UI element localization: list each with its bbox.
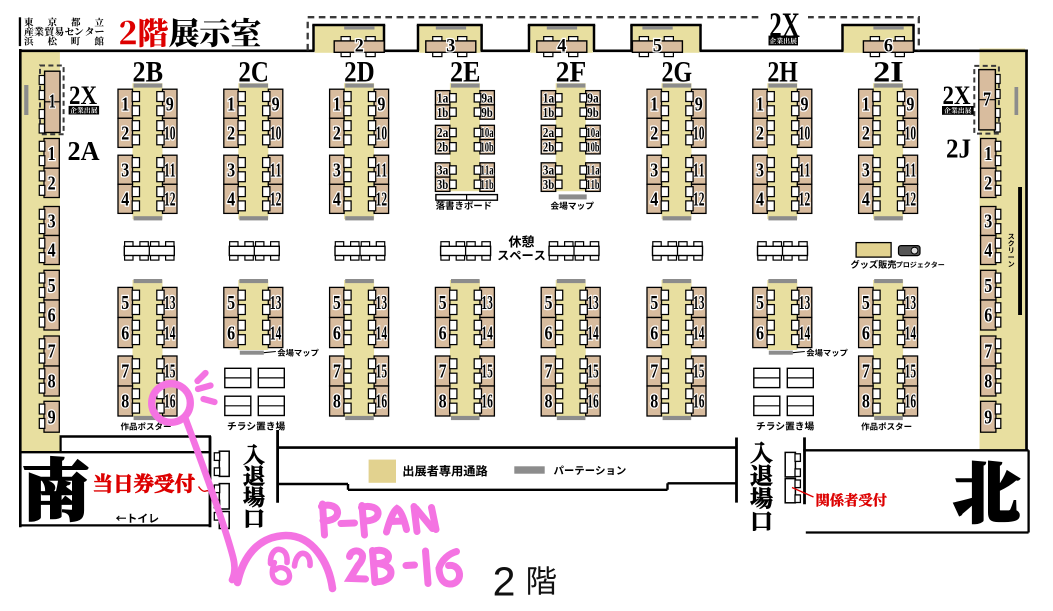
svg-text:13: 13 — [376, 293, 388, 314]
svg-text:4: 4 — [756, 190, 764, 211]
svg-text:9: 9 — [695, 95, 703, 116]
svg-text:13: 13 — [693, 293, 705, 314]
svg-text:16: 16 — [164, 392, 176, 413]
svg-text:10b: 10b — [481, 140, 494, 155]
svg-text:9: 9 — [272, 95, 280, 116]
svg-text:2: 2 — [493, 559, 516, 605]
svg-text:8: 8 — [545, 392, 553, 413]
svg-text:6: 6 — [545, 323, 553, 344]
svg-text:7: 7 — [121, 362, 129, 383]
svg-text:2A: 2A — [68, 136, 100, 166]
svg-text:2J: 2J — [946, 134, 971, 164]
svg-text:15: 15 — [693, 362, 705, 383]
svg-text:2: 2 — [227, 124, 235, 145]
svg-text:9: 9 — [377, 95, 385, 116]
svg-text:6: 6 — [862, 323, 870, 344]
svg-text:10: 10 — [799, 124, 811, 145]
svg-text:15: 15 — [587, 362, 599, 383]
svg-text:9b: 9b — [587, 105, 599, 120]
svg-text:13: 13 — [481, 293, 493, 314]
svg-text:4: 4 — [984, 241, 992, 262]
svg-text:5: 5 — [650, 293, 658, 314]
svg-text:4: 4 — [121, 190, 129, 211]
svg-text:16: 16 — [587, 392, 599, 413]
svg-text:3a: 3a — [437, 163, 448, 178]
svg-text:2X: 2X — [943, 80, 971, 110]
svg-text:1: 1 — [756, 95, 764, 116]
svg-text:11: 11 — [376, 161, 388, 182]
svg-text:11b: 11b — [586, 177, 599, 192]
svg-text:5: 5 — [227, 293, 235, 314]
svg-text:8: 8 — [862, 392, 870, 413]
svg-text:8: 8 — [121, 392, 129, 413]
svg-text:2X: 2X — [69, 80, 97, 110]
svg-text:2: 2 — [121, 124, 129, 145]
svg-text:2: 2 — [333, 124, 341, 145]
svg-text:2: 2 — [650, 124, 658, 145]
svg-text:10: 10 — [376, 124, 388, 145]
svg-text:1a: 1a — [543, 91, 554, 106]
svg-text:14: 14 — [270, 323, 282, 344]
svg-text:5: 5 — [862, 293, 870, 314]
svg-text:5: 5 — [545, 293, 553, 314]
svg-text:1: 1 — [333, 95, 341, 116]
svg-text:1: 1 — [227, 95, 235, 116]
svg-text:8: 8 — [48, 372, 56, 393]
svg-text:3a: 3a — [543, 163, 554, 178]
svg-text:15: 15 — [481, 362, 493, 383]
svg-text:1: 1 — [121, 95, 129, 116]
svg-text:8: 8 — [984, 372, 992, 393]
svg-text:14: 14 — [587, 323, 599, 344]
svg-text:11b: 11b — [481, 177, 494, 192]
svg-text:10b: 10b — [586, 140, 599, 155]
svg-text:13: 13 — [799, 293, 811, 314]
svg-text:5: 5 — [653, 36, 662, 57]
svg-text:11: 11 — [799, 161, 811, 182]
svg-text:13: 13 — [270, 293, 282, 314]
svg-text:6: 6 — [756, 323, 764, 344]
svg-text:14: 14 — [799, 323, 811, 344]
svg-text:1b: 1b — [543, 105, 555, 120]
svg-text:9: 9 — [48, 408, 56, 429]
svg-text:8: 8 — [439, 392, 447, 413]
svg-text:12: 12 — [799, 190, 811, 211]
svg-text:10: 10 — [905, 124, 917, 145]
svg-text:3: 3 — [446, 36, 455, 57]
svg-text:6: 6 — [650, 323, 658, 344]
svg-text:7: 7 — [439, 362, 447, 383]
svg-text:2: 2 — [355, 36, 364, 57]
svg-text:3: 3 — [862, 161, 870, 182]
svg-text:3: 3 — [984, 212, 992, 233]
svg-text:11: 11 — [693, 161, 705, 182]
svg-text:6: 6 — [48, 306, 56, 327]
svg-text:9: 9 — [984, 408, 992, 429]
svg-text:7: 7 — [984, 342, 992, 363]
svg-text:10: 10 — [164, 124, 176, 145]
svg-text:4: 4 — [227, 190, 235, 211]
svg-text:9: 9 — [801, 95, 809, 116]
svg-text:2: 2 — [862, 124, 870, 145]
svg-text:1: 1 — [862, 95, 870, 116]
svg-text:7: 7 — [862, 362, 870, 383]
svg-text:3: 3 — [650, 161, 658, 182]
svg-text:11a: 11a — [481, 163, 494, 178]
svg-text:3: 3 — [333, 161, 341, 182]
svg-text:2: 2 — [48, 174, 56, 195]
svg-text:4: 4 — [557, 36, 566, 57]
svg-text:4: 4 — [862, 190, 870, 211]
svg-text:14: 14 — [164, 323, 176, 344]
svg-text:10: 10 — [270, 124, 282, 145]
svg-text:12: 12 — [164, 190, 176, 211]
svg-text:10a: 10a — [586, 125, 599, 140]
svg-text:4: 4 — [333, 190, 341, 211]
svg-text:2a: 2a — [437, 125, 448, 140]
svg-text:3b: 3b — [437, 177, 449, 192]
svg-text:10: 10 — [693, 124, 705, 145]
svg-text:6: 6 — [121, 323, 129, 344]
svg-text:2b: 2b — [437, 140, 449, 155]
svg-text:15: 15 — [376, 362, 388, 383]
svg-text:12: 12 — [905, 190, 917, 211]
svg-text:2a: 2a — [543, 125, 554, 140]
svg-text:2: 2 — [984, 174, 992, 195]
svg-text:16: 16 — [905, 392, 917, 413]
svg-text:16: 16 — [693, 392, 705, 413]
svg-text:10a: 10a — [481, 125, 494, 140]
svg-text:5: 5 — [48, 276, 56, 297]
svg-text:13: 13 — [587, 293, 599, 314]
svg-text:4: 4 — [650, 190, 658, 211]
svg-text:3: 3 — [227, 161, 235, 182]
svg-text:14: 14 — [905, 323, 917, 344]
svg-text:11: 11 — [905, 161, 917, 182]
svg-text:13: 13 — [905, 293, 917, 314]
svg-text:3: 3 — [121, 161, 129, 182]
svg-text:11: 11 — [270, 161, 282, 182]
svg-text:3: 3 — [48, 212, 56, 233]
svg-text:11: 11 — [164, 161, 176, 182]
svg-text:14: 14 — [376, 323, 388, 344]
svg-text:7: 7 — [333, 362, 341, 383]
svg-text:5: 5 — [333, 293, 341, 314]
svg-text:6: 6 — [884, 36, 893, 57]
svg-text:16: 16 — [376, 392, 388, 413]
svg-text:5: 5 — [121, 293, 129, 314]
svg-text:12: 12 — [376, 190, 388, 211]
svg-text:5: 5 — [756, 293, 764, 314]
svg-text:2b: 2b — [543, 140, 555, 155]
svg-text:14: 14 — [693, 323, 705, 344]
svg-text:15: 15 — [164, 362, 176, 383]
svg-text:2: 2 — [756, 124, 764, 145]
svg-text:9: 9 — [166, 95, 174, 116]
svg-text:1b: 1b — [437, 105, 449, 120]
svg-text:7: 7 — [983, 90, 991, 111]
svg-text:9: 9 — [906, 95, 914, 116]
svg-text:12: 12 — [270, 190, 282, 211]
svg-text:5: 5 — [439, 293, 447, 314]
svg-text:1: 1 — [984, 144, 992, 165]
svg-text:9a: 9a — [481, 91, 492, 106]
svg-text:9b: 9b — [481, 105, 493, 120]
svg-text:1: 1 — [650, 95, 658, 116]
svg-text:6: 6 — [227, 323, 235, 344]
svg-text:9a: 9a — [587, 91, 598, 106]
svg-text:1: 1 — [49, 91, 56, 112]
svg-text:16: 16 — [481, 392, 493, 413]
svg-text:5: 5 — [984, 276, 992, 297]
svg-text:8: 8 — [650, 392, 658, 413]
svg-text:3: 3 — [756, 161, 764, 182]
svg-text:6: 6 — [984, 306, 992, 327]
svg-text:7: 7 — [650, 362, 658, 383]
svg-text:7: 7 — [48, 342, 56, 363]
svg-text:1a: 1a — [437, 91, 448, 106]
svg-text:15: 15 — [905, 362, 917, 383]
svg-text:1: 1 — [48, 144, 56, 165]
svg-text:3b: 3b — [543, 177, 555, 192]
svg-text:12: 12 — [693, 190, 705, 211]
svg-text:14: 14 — [481, 323, 493, 344]
svg-text:4: 4 — [48, 241, 56, 262]
svg-text:13: 13 — [164, 293, 176, 314]
svg-text:6: 6 — [439, 323, 447, 344]
svg-text:8: 8 — [333, 392, 341, 413]
svg-text:7: 7 — [545, 362, 553, 383]
svg-text:6: 6 — [333, 323, 341, 344]
svg-text:11a: 11a — [586, 163, 599, 178]
